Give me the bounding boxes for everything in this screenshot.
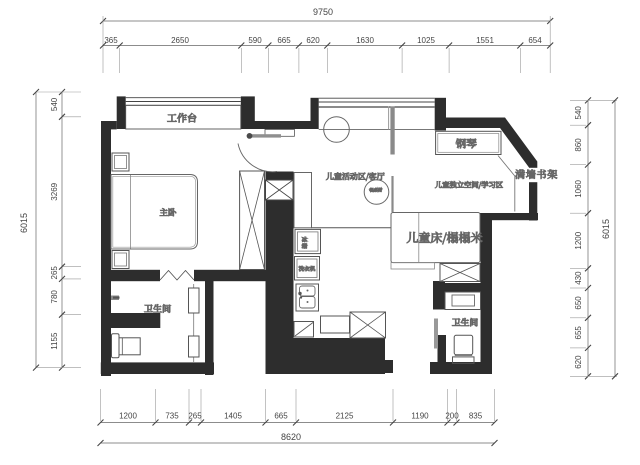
svg-text:1190: 1190 [411,412,429,421]
svg-text:540: 540 [574,106,583,120]
svg-text:665: 665 [274,412,288,421]
svg-text:2650: 2650 [171,36,189,45]
svg-text:8620: 8620 [281,432,301,442]
svg-text:430: 430 [574,271,583,285]
svg-text:365: 365 [104,36,118,45]
svg-text:6015: 6015 [601,219,611,239]
svg-text:200: 200 [445,412,459,421]
svg-text:265: 265 [188,412,202,421]
svg-text:620: 620 [306,36,320,45]
svg-text:620: 620 [574,355,583,369]
svg-text:265: 265 [50,266,59,280]
svg-text:780: 780 [50,290,59,304]
svg-text:860: 860 [574,138,583,152]
svg-text:1025: 1025 [417,36,435,45]
svg-text:1630: 1630 [356,36,374,45]
svg-text:1200: 1200 [574,231,583,249]
svg-text:735: 735 [165,412,179,421]
svg-text:3269: 3269 [50,182,59,200]
svg-text:1060: 1060 [574,179,583,197]
svg-text:9750: 9750 [313,7,333,17]
svg-text:654: 654 [528,36,542,45]
svg-text:1405: 1405 [224,412,242,421]
svg-text:1200: 1200 [119,412,137,421]
svg-text:6015: 6015 [19,213,29,233]
svg-text:835: 835 [469,412,483,421]
svg-text:655: 655 [574,326,583,340]
svg-text:665: 665 [277,36,291,45]
svg-text:590: 590 [248,36,262,45]
svg-text:1551: 1551 [476,36,494,45]
svg-text:650: 650 [574,296,583,310]
svg-text:1155: 1155 [50,332,59,350]
svg-text:2125: 2125 [336,412,354,421]
svg-text:540: 540 [50,97,59,111]
